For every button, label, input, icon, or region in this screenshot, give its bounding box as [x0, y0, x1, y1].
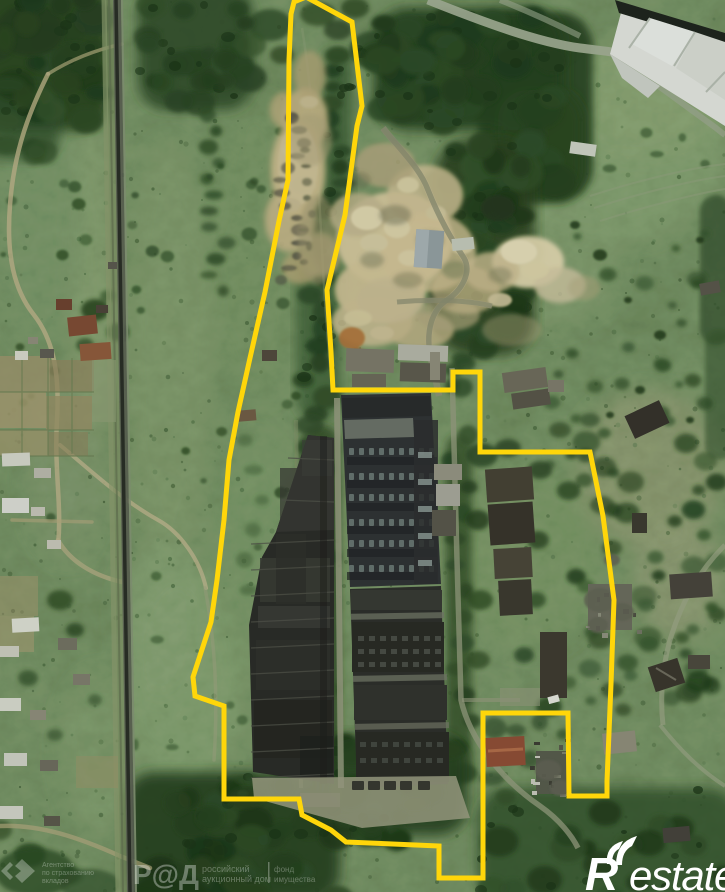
- svg-text:по страхованию: по страхованию: [42, 870, 94, 877]
- svg-text:имущества: имущества: [274, 875, 316, 884]
- svg-text:Р@Д: Р@Д: [133, 859, 199, 890]
- svg-text:estate: estate: [629, 852, 725, 892]
- svg-text:фонд: фонд: [274, 865, 294, 874]
- svg-text:Агентство: Агентство: [42, 862, 74, 869]
- svg-text:российский: российский: [202, 864, 250, 874]
- svg-text:вкладов: вкладов: [42, 878, 69, 885]
- svg-text:аукционный дом: аукционный дом: [202, 874, 271, 884]
